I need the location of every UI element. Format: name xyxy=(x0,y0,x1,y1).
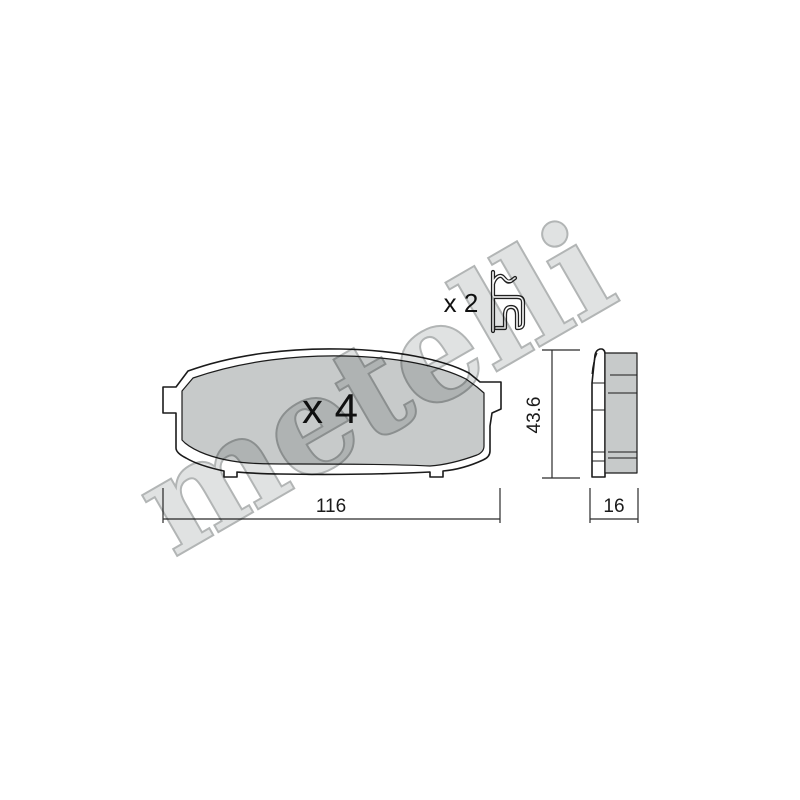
dimension-width: 116 xyxy=(163,488,500,523)
side-view xyxy=(592,349,637,477)
dimension-thickness: 16 xyxy=(590,488,638,523)
brake-pad-technical-drawing: x 4 x 2 116 43.6 xyxy=(0,0,800,800)
diagram-layer: x 4 x 2 116 43.6 xyxy=(0,0,800,800)
dimension-width-value: 116 xyxy=(316,496,346,517)
retaining-clip xyxy=(493,272,523,331)
clip-quantity-label: x 2 xyxy=(444,288,479,318)
front-view-quantity-label: x 4 xyxy=(302,385,358,432)
dimension-thickness-value: 16 xyxy=(603,496,624,517)
side-view-friction-block xyxy=(605,353,637,473)
side-view-plate xyxy=(592,349,605,477)
dimension-height: 43.6 xyxy=(524,350,580,478)
dimension-height-value: 43.6 xyxy=(524,397,545,434)
dimension-height-lines xyxy=(542,350,580,478)
